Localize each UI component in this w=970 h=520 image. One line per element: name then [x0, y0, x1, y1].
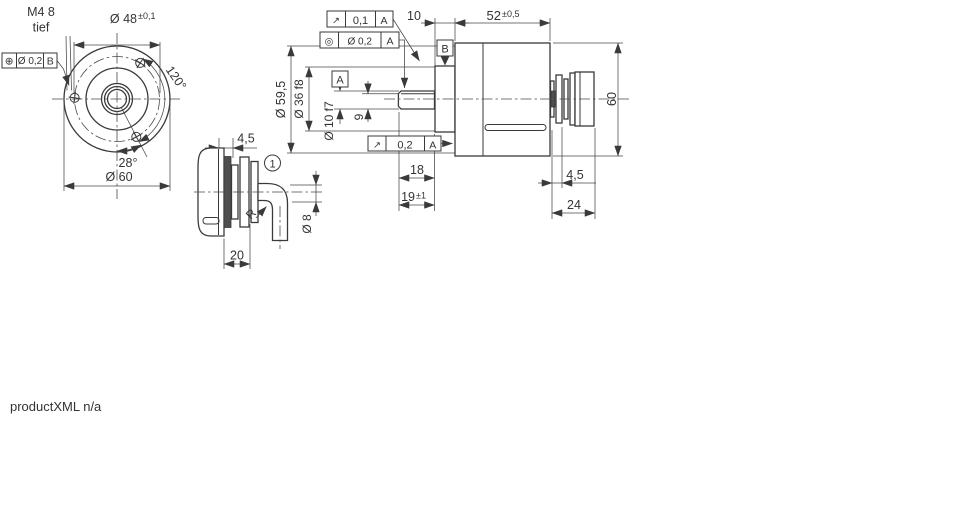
front-view: Ø 48 ±0,1 M4 8 tief ⊕ Ø 0,2 B [2, 5, 189, 199]
position-value: Ø 0,2 [18, 56, 43, 67]
dim-shaft-len-label: 18 [410, 163, 424, 177]
concentricity-datum: A [386, 35, 393, 47]
datum-b: B [437, 40, 453, 66]
dim-cable-label: Ø 8 [300, 214, 314, 234]
mounting-screw [68, 91, 82, 105]
dim-shaft-len2-tol: ±1 [416, 191, 426, 201]
concentricity-icon: ◎ [325, 37, 334, 48]
position-datum: B [47, 56, 54, 68]
concentricity-value: Ø 0,2 [347, 36, 372, 47]
dim-outer-label: Ø 60 [105, 170, 132, 184]
encoder-dimensional-drawing: Ø 48 ±0,1 M4 8 tief ⊕ Ø 0,2 B [0, 0, 970, 520]
note-marker-label: 1 [269, 158, 275, 170]
dim-body-tol: ±0,5 [502, 9, 519, 19]
dim-shaft-len2-label: 19 [401, 190, 415, 204]
dia-shaft-label: Ø 10 f7 [322, 101, 336, 141]
cable-view: 4,5 20 Ø 8 1 R [194, 132, 323, 270]
side-view: Ø 59,5 Ø 36 f8 Ø 10 f7 9 10 52 ±0,5 60 [274, 8, 630, 219]
dim-connector-label: 24 [567, 198, 581, 212]
face-runout-icon: ↗ [373, 140, 381, 151]
position-tolerance-frame: ⊕ Ø 0,2 B [2, 53, 69, 86]
runout-datum: A [380, 15, 387, 27]
note-marker: 1 [265, 155, 281, 171]
angle-screw-label: 28° [119, 156, 138, 170]
dim-connector-rings-label: 4,5 [566, 168, 583, 182]
dim-bolt-circle: Ø 48 [110, 12, 137, 26]
runout-face-frame: ↗ 0,2 A [368, 136, 453, 151]
watermark: productXML n/a [10, 399, 102, 414]
thread-callout-line2: tief [33, 21, 50, 35]
dim-flat-label: 9 [352, 113, 366, 120]
dia-pilot-label: Ø 36 f8 [292, 79, 306, 119]
dia-body-label: Ø 59,5 [274, 81, 288, 119]
datum-a-label: A [336, 75, 344, 87]
runout-icon: ↗ [332, 16, 340, 27]
datum-b-label: B [441, 44, 448, 56]
face-runout-datum: A [429, 139, 436, 151]
housing-body [455, 43, 550, 156]
dim-flange-label: 10 [407, 9, 421, 23]
thread-callout-line1: M4 8 [27, 5, 55, 19]
angle-bolts-label: 120° [163, 63, 189, 92]
technical-drawing-page: Ø 48 ±0,1 M4 8 tief ⊕ Ø 0,2 B [0, 0, 970, 520]
runout-value: 0,1 [353, 15, 368, 27]
face-runout-value: 0,2 [397, 139, 412, 151]
position-symbol-icon: ⊕ [5, 56, 14, 68]
dim-bolt-circle-tol: ±0,1 [138, 11, 155, 21]
mounting-screw [132, 55, 149, 72]
datum-a: A [332, 71, 348, 87]
dim-body-label: 52 [487, 8, 501, 23]
dim-clamp-label: 4,5 [237, 132, 254, 146]
dim-length-label: 20 [230, 249, 244, 263]
